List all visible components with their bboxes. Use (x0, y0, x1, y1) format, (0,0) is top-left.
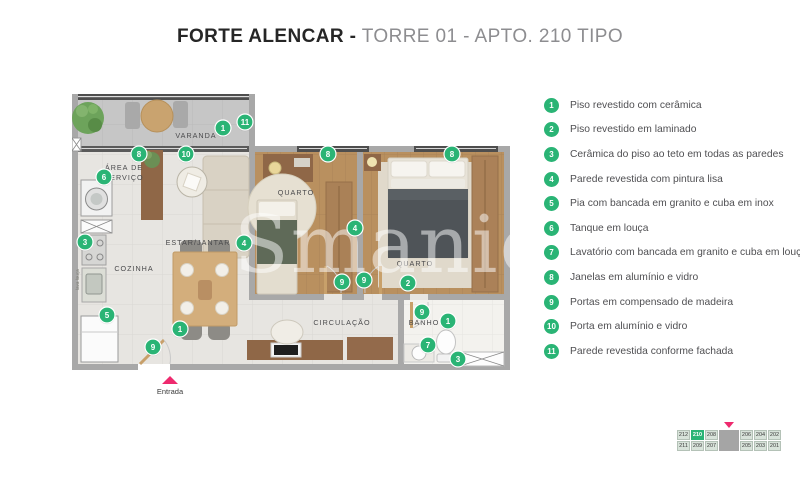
plan-marker-3: 3 (77, 234, 94, 251)
key-plan-arrow-icon (724, 422, 734, 428)
key-plan-unit-207: 207 (705, 441, 718, 451)
plan-marker-1: 1 (215, 120, 232, 137)
balcony-chair (173, 101, 188, 128)
key-plan-unit-208: 208 (705, 430, 718, 440)
svg-text:9: 9 (362, 276, 367, 285)
plan-marker-9: 9 (145, 339, 162, 356)
svg-text:11: 11 (241, 118, 250, 127)
key-plan-unit-210: 210 (691, 430, 704, 440)
legend-number-badge: 8 (544, 270, 559, 285)
svg-text:7: 7 (426, 341, 431, 350)
plan-marker-9: 9 (356, 272, 373, 289)
page: FORTE ALENCAR - TORRE 01 - APTO. 210 TIP… (0, 0, 800, 480)
key-plan: 212210208206204202211209207205203201 (677, 422, 781, 451)
legend-number-badge: 4 (544, 172, 559, 187)
plan-marker-8: 8 (444, 146, 461, 163)
key-plan-unit-201: 201 (768, 441, 781, 451)
svg-text:8: 8 (450, 150, 455, 159)
plan-marker-4: 4 (236, 235, 253, 252)
plan-marker-1: 1 (440, 313, 457, 330)
legend-item-text: Porta em alumínio e vidro (570, 321, 687, 332)
svg-text:1: 1 (446, 317, 451, 326)
entrance-indicator: Entrada (145, 376, 195, 396)
plan-marker-2: 2 (400, 275, 417, 292)
legend-item-text: Portas em compensado de madeira (570, 297, 733, 308)
svg-text:3: 3 (83, 238, 88, 247)
legend: 1Piso revestido com cerâmica2Piso revest… (544, 93, 796, 364)
legend-item-text: Lavatório com bancada em granito e cuba … (570, 247, 800, 258)
key-plan-unit-206: 206 (740, 430, 753, 440)
legend-item-1: 1Piso revestido com cerâmica (544, 93, 796, 118)
svg-text:9: 9 (340, 278, 345, 287)
key-plan-unit-202: 202 (768, 430, 781, 440)
svg-text:4: 4 (242, 239, 247, 248)
legend-number-badge: 10 (544, 319, 559, 334)
legend-number-badge: 7 (544, 245, 559, 260)
entrance-arrow-icon (162, 376, 178, 384)
balcony-chair (125, 102, 140, 129)
room-label: COZINHA (114, 264, 153, 273)
legend-item-text: Piso revestido em laminado (570, 124, 696, 135)
room-label: VARANDA (175, 131, 216, 140)
legend-item-text: Janelas em alumínio e vidro (570, 272, 698, 283)
key-plan-core (719, 430, 739, 451)
fridge (81, 316, 118, 362)
svg-text:4: 4 (353, 224, 358, 233)
svg-text:5: 5 (105, 311, 110, 320)
legend-number-badge: 1 (544, 98, 559, 113)
legend-item-text: Cerâmica do piso ao teto em todas as par… (570, 149, 784, 160)
cabinet (347, 337, 393, 360)
svg-text:9: 9 (420, 308, 425, 317)
legend-item-8: 8Janelas em alumínio e vidro (544, 265, 796, 290)
svg-text:2: 2 (406, 279, 411, 288)
plan-marker-8: 8 (320, 146, 337, 163)
key-plan-grid: 212210208206204202211209207205203201 (677, 430, 781, 451)
plan-marker-11: 11 (237, 114, 254, 131)
key-plan-unit-209: 209 (691, 441, 704, 451)
plan-marker-7: 7 (420, 337, 437, 354)
legend-item-6: 6Tanque em louça (544, 216, 796, 241)
plan-marker-9: 9 (334, 274, 351, 291)
room-label: ÁREA DE (105, 163, 143, 172)
floor-plan: lava louça (72, 94, 510, 374)
legend-number-badge: 9 (544, 295, 559, 310)
legend-item-text: Parede revestida conforme fachada (570, 346, 733, 357)
svg-text:10: 10 (182, 150, 191, 159)
legend-number-badge: 3 (544, 147, 559, 162)
svg-text:3: 3 (456, 355, 461, 364)
svg-text:8: 8 (326, 150, 331, 159)
room-label: CIRCULAÇÃO (313, 318, 370, 327)
armchair (271, 320, 303, 344)
svg-text:1: 1 (221, 124, 226, 133)
room-label: ESTAR/JANTAR (166, 238, 231, 247)
legend-item-5: 5Pia com bancada em granito e cuba em in… (544, 191, 796, 216)
legend-item-text: Parede revestida com pintura lisa (570, 174, 723, 185)
plan-marker-8: 8 (131, 146, 148, 163)
legend-item-3: 3Cerâmica do piso ao teto em todas as pa… (544, 142, 796, 167)
appliance-label: lava louça (75, 269, 80, 290)
page-title: FORTE ALENCAR - TORRE 01 - APTO. 210 TIP… (0, 26, 800, 48)
plan-marker-4: 4 (347, 220, 364, 237)
legend-item-2: 2Piso revestido em laminado (544, 118, 796, 143)
plan-marker-5: 5 (99, 307, 116, 324)
toilet (437, 330, 456, 354)
plan-marker-9: 9 (414, 304, 431, 321)
legend-item-text: Piso revestido com cerâmica (570, 100, 702, 111)
key-plan-unit-212: 212 (677, 430, 690, 440)
legend-item-9: 9Portas em compensado de madeira (544, 290, 796, 315)
legend-item-11: 11Parede revestida conforme fachada (544, 339, 796, 364)
key-plan-unit-205: 205 (740, 441, 753, 451)
legend-item-4: 4Parede revestida com pintura lisa (544, 167, 796, 192)
plant (72, 102, 104, 134)
legend-number-badge: 2 (544, 122, 559, 137)
key-plan-unit-211: 211 (677, 441, 690, 451)
room-label: QUARTO (278, 188, 315, 197)
key-plan-unit-204: 204 (754, 430, 767, 440)
plan-marker-10: 10 (178, 146, 195, 163)
key-plan-unit-203: 203 (754, 441, 767, 451)
legend-item-7: 7Lavatório com bancada em granito e cuba… (544, 241, 796, 266)
legend-item-text: Pia com bancada em granito e cuba em ino… (570, 198, 774, 209)
svg-text:8: 8 (137, 150, 142, 159)
legend-number-badge: 6 (544, 221, 559, 236)
legend-number-badge: 11 (544, 344, 559, 359)
project-name: FORTE ALENCAR - (177, 26, 356, 47)
entrance-label: Entrada (145, 387, 195, 396)
tv (274, 345, 298, 355)
legend-item-10: 10Porta em alumínio e vidro (544, 314, 796, 339)
unit-info: TORRE 01 - APTO. 210 TIPO (356, 26, 623, 47)
balcony-table (141, 100, 173, 132)
plan-marker-3: 3 (450, 351, 467, 368)
plan-marker-6: 6 (96, 169, 113, 186)
svg-text:9: 9 (151, 343, 156, 352)
legend-item-text: Tanque em louça (570, 223, 648, 234)
legend-number-badge: 5 (544, 196, 559, 211)
svg-text:6: 6 (102, 173, 107, 182)
plan-marker-1: 1 (172, 321, 189, 338)
svg-text:1: 1 (178, 325, 183, 334)
